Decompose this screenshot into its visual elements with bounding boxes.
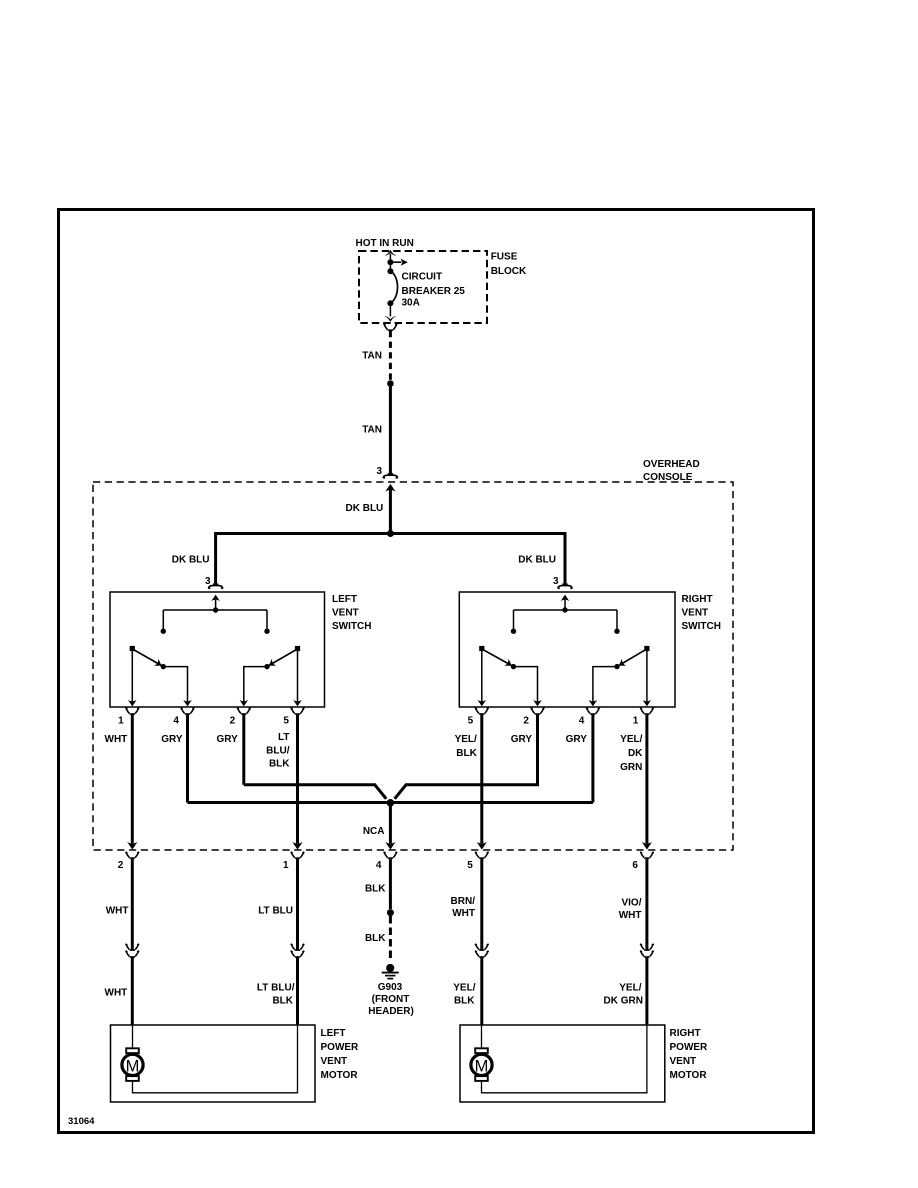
svg-text:POWER: POWER	[321, 1042, 360, 1053]
svg-text:LT: LT	[278, 732, 289, 743]
svg-text:YEL/: YEL/	[619, 983, 641, 994]
svg-text:30A: 30A	[402, 297, 420, 308]
svg-text:NCA: NCA	[363, 826, 385, 837]
svg-text:TAN: TAN	[362, 425, 382, 436]
svg-text:4: 4	[376, 860, 382, 871]
svg-text:BLK: BLK	[365, 933, 386, 944]
svg-text:GRY: GRY	[566, 734, 588, 745]
svg-text:DK BLU: DK BLU	[172, 555, 210, 566]
svg-text:SWITCH: SWITCH	[332, 621, 371, 632]
svg-text:POWER: POWER	[670, 1042, 709, 1053]
svg-text:BLK: BLK	[365, 884, 386, 895]
svg-text:(FRONT: (FRONT	[372, 994, 410, 1005]
svg-text:BLU/: BLU/	[266, 745, 290, 756]
svg-text:OVERHEAD: OVERHEAD	[643, 459, 700, 470]
svg-text:WHT: WHT	[105, 988, 128, 999]
svg-text:GRY: GRY	[216, 734, 238, 745]
svg-text:4: 4	[579, 716, 585, 727]
svg-text:TAN: TAN	[362, 350, 382, 361]
svg-text:M: M	[475, 1057, 489, 1075]
svg-text:BLK: BLK	[272, 996, 293, 1007]
svg-text:LEFT: LEFT	[321, 1028, 346, 1039]
svg-text:RIGHT: RIGHT	[670, 1028, 701, 1039]
svg-text:DK BLU: DK BLU	[518, 555, 556, 566]
svg-text:3: 3	[553, 576, 559, 587]
svg-text:YEL/: YEL/	[620, 734, 642, 745]
svg-text:WHT: WHT	[452, 908, 475, 919]
svg-text:HOT IN RUN: HOT IN RUN	[356, 238, 414, 249]
svg-text:FUSE: FUSE	[491, 252, 518, 263]
svg-text:VIO/: VIO/	[621, 898, 641, 909]
svg-text:1: 1	[118, 716, 124, 727]
svg-text:1: 1	[283, 860, 289, 871]
svg-text:DK: DK	[628, 748, 643, 759]
svg-text:LT BLU: LT BLU	[258, 906, 293, 917]
svg-text:5: 5	[468, 716, 474, 727]
svg-text:RIGHT: RIGHT	[682, 594, 713, 605]
svg-text:31064: 31064	[68, 1116, 95, 1127]
svg-text:WHT: WHT	[105, 734, 128, 745]
svg-text:LEFT: LEFT	[332, 594, 357, 605]
svg-text:DK BLU: DK BLU	[346, 503, 384, 514]
svg-text:CONSOLE: CONSOLE	[643, 472, 693, 483]
svg-text:3: 3	[376, 466, 382, 477]
svg-text:YEL/: YEL/	[455, 734, 477, 745]
svg-text:VENT: VENT	[321, 1056, 348, 1067]
svg-text:BLOCK: BLOCK	[491, 266, 527, 277]
svg-text:4: 4	[173, 716, 179, 727]
svg-text:VENT: VENT	[682, 608, 709, 619]
svg-text:DK GRN: DK GRN	[604, 996, 643, 1007]
svg-text:G903: G903	[378, 982, 403, 993]
svg-text:GRY: GRY	[161, 734, 183, 745]
svg-text:VENT: VENT	[670, 1056, 697, 1067]
svg-text:GRN: GRN	[620, 762, 642, 773]
svg-text:WHT: WHT	[106, 906, 129, 917]
svg-text:2: 2	[523, 716, 529, 727]
svg-text:M: M	[126, 1057, 140, 1075]
svg-text:BRN/: BRN/	[451, 896, 476, 907]
svg-text:BLK: BLK	[269, 759, 290, 770]
svg-text:SWITCH: SWITCH	[682, 621, 721, 632]
svg-text:HEADER): HEADER)	[368, 1006, 414, 1017]
svg-text:WHT: WHT	[619, 910, 642, 921]
svg-text:2: 2	[118, 860, 124, 871]
svg-text:YEL/: YEL/	[453, 983, 475, 994]
svg-text:BLK: BLK	[456, 748, 477, 759]
svg-text:BREAKER 25: BREAKER 25	[402, 286, 466, 297]
svg-text:VENT: VENT	[332, 608, 359, 619]
svg-text:CIRCUIT: CIRCUIT	[402, 272, 443, 283]
svg-text:5: 5	[467, 860, 473, 871]
svg-text:MOTOR: MOTOR	[321, 1070, 359, 1081]
svg-text:GRY: GRY	[511, 734, 533, 745]
svg-text:LT BLU/: LT BLU/	[257, 983, 295, 994]
svg-text:2: 2	[230, 716, 236, 727]
svg-text:5: 5	[283, 716, 289, 727]
svg-text:MOTOR: MOTOR	[670, 1070, 708, 1081]
svg-text:BLK: BLK	[454, 996, 475, 1007]
svg-text:6: 6	[632, 860, 638, 871]
svg-text:1: 1	[633, 716, 639, 727]
